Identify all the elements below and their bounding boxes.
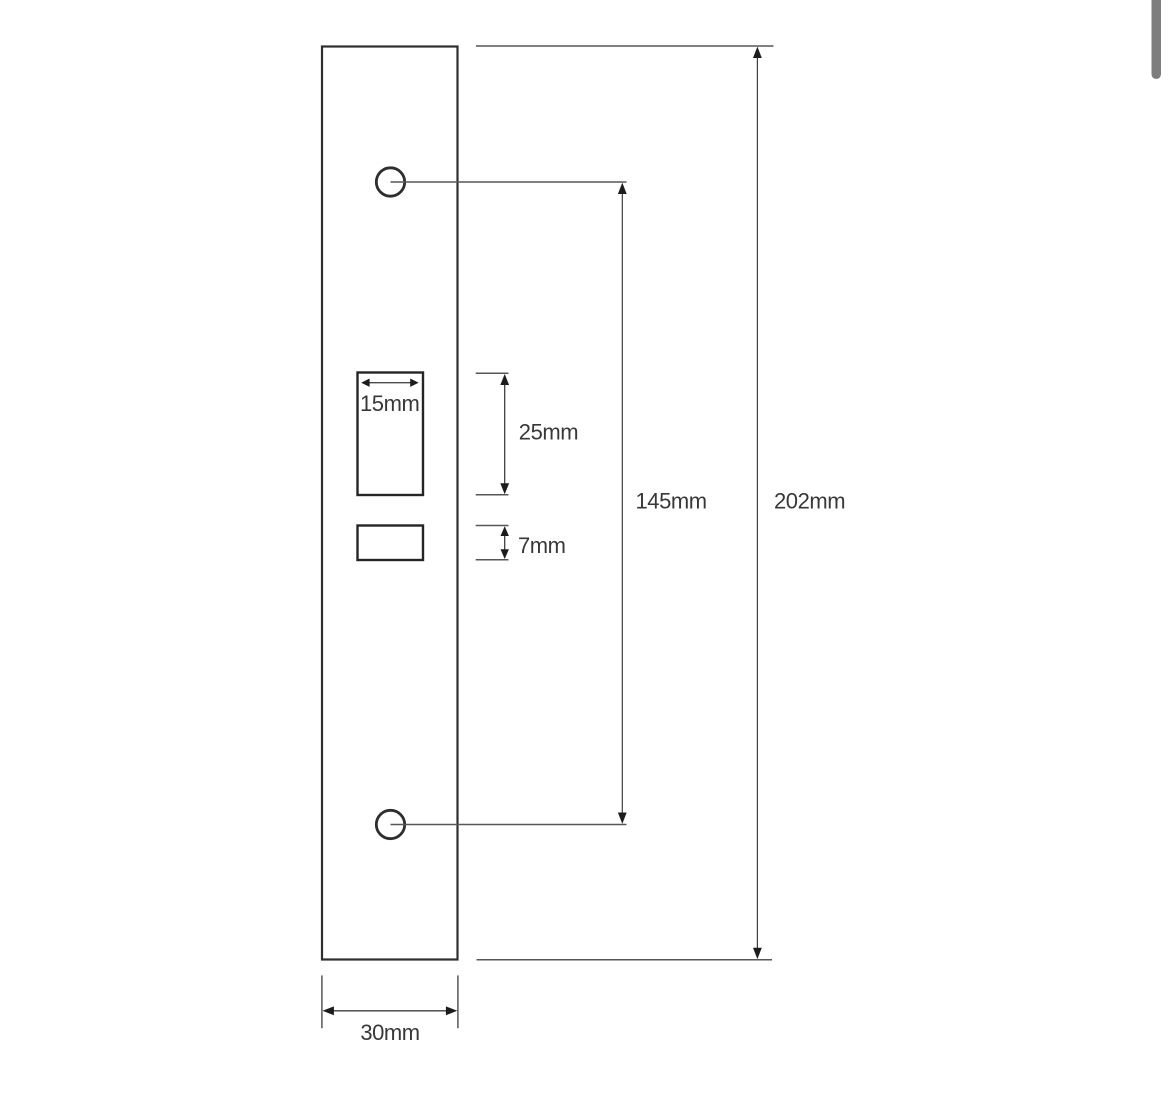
svg-text:30mm: 30mm xyxy=(360,1020,419,1045)
svg-text:145mm: 145mm xyxy=(636,489,707,514)
svg-text:15mm: 15mm xyxy=(360,391,419,416)
svg-text:25mm: 25mm xyxy=(519,420,578,445)
svg-text:202mm: 202mm xyxy=(774,489,845,514)
svg-text:7mm: 7mm xyxy=(518,533,566,558)
